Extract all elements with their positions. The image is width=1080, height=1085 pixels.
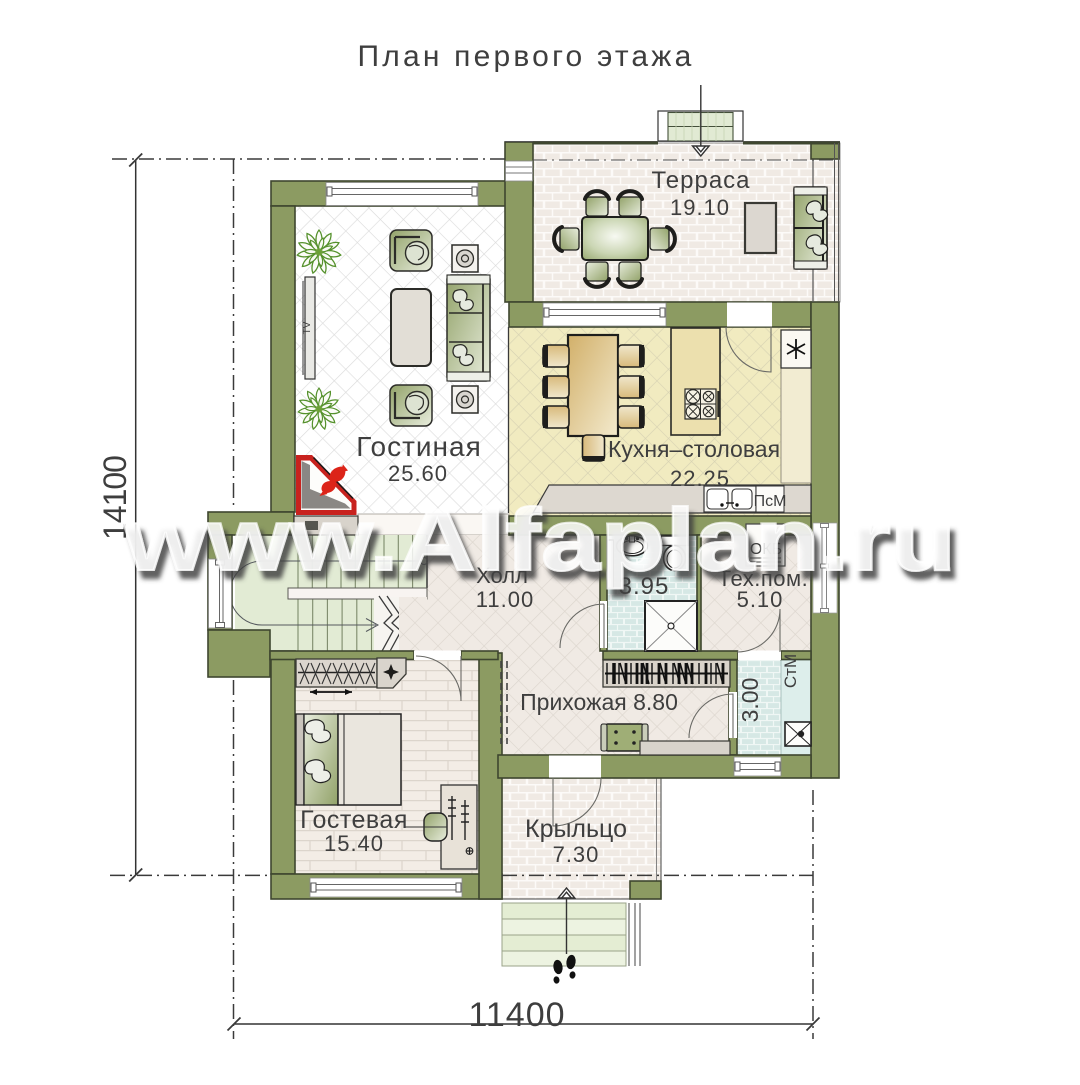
svg-text:19.10: 19.10 bbox=[670, 195, 730, 220]
svg-text:5.10: 5.10 bbox=[737, 587, 784, 612]
svg-text:Гостевая: Гостевая bbox=[300, 806, 408, 834]
svg-text:7.30: 7.30 bbox=[553, 842, 600, 867]
svg-text:11400: 11400 bbox=[468, 996, 565, 1034]
svg-text:Прихожая 8.80: Прихожая 8.80 bbox=[520, 689, 678, 715]
svg-text:22.25: 22.25 bbox=[670, 466, 730, 491]
svg-text:СтМ: СтМ bbox=[781, 654, 800, 688]
svg-text:15.40: 15.40 bbox=[324, 831, 384, 856]
svg-text:25.60: 25.60 bbox=[388, 461, 448, 486]
svg-text:3.00: 3.00 bbox=[737, 678, 763, 723]
svg-text:TV: TV bbox=[302, 321, 313, 334]
svg-text:11.00: 11.00 bbox=[476, 587, 534, 612]
svg-text:Терраса: Терраса bbox=[651, 167, 750, 194]
svg-text:Крыльцо: Крыльцо bbox=[525, 815, 627, 843]
svg-text:План первого этажа: План первого этажа bbox=[358, 40, 695, 73]
svg-text:www.Alfaplan.ru: www.Alfaplan.ru bbox=[123, 490, 956, 589]
svg-text:Кухня–столовая: Кухня–столовая bbox=[608, 436, 780, 462]
svg-text:Гостиная: Гостиная bbox=[356, 431, 482, 462]
